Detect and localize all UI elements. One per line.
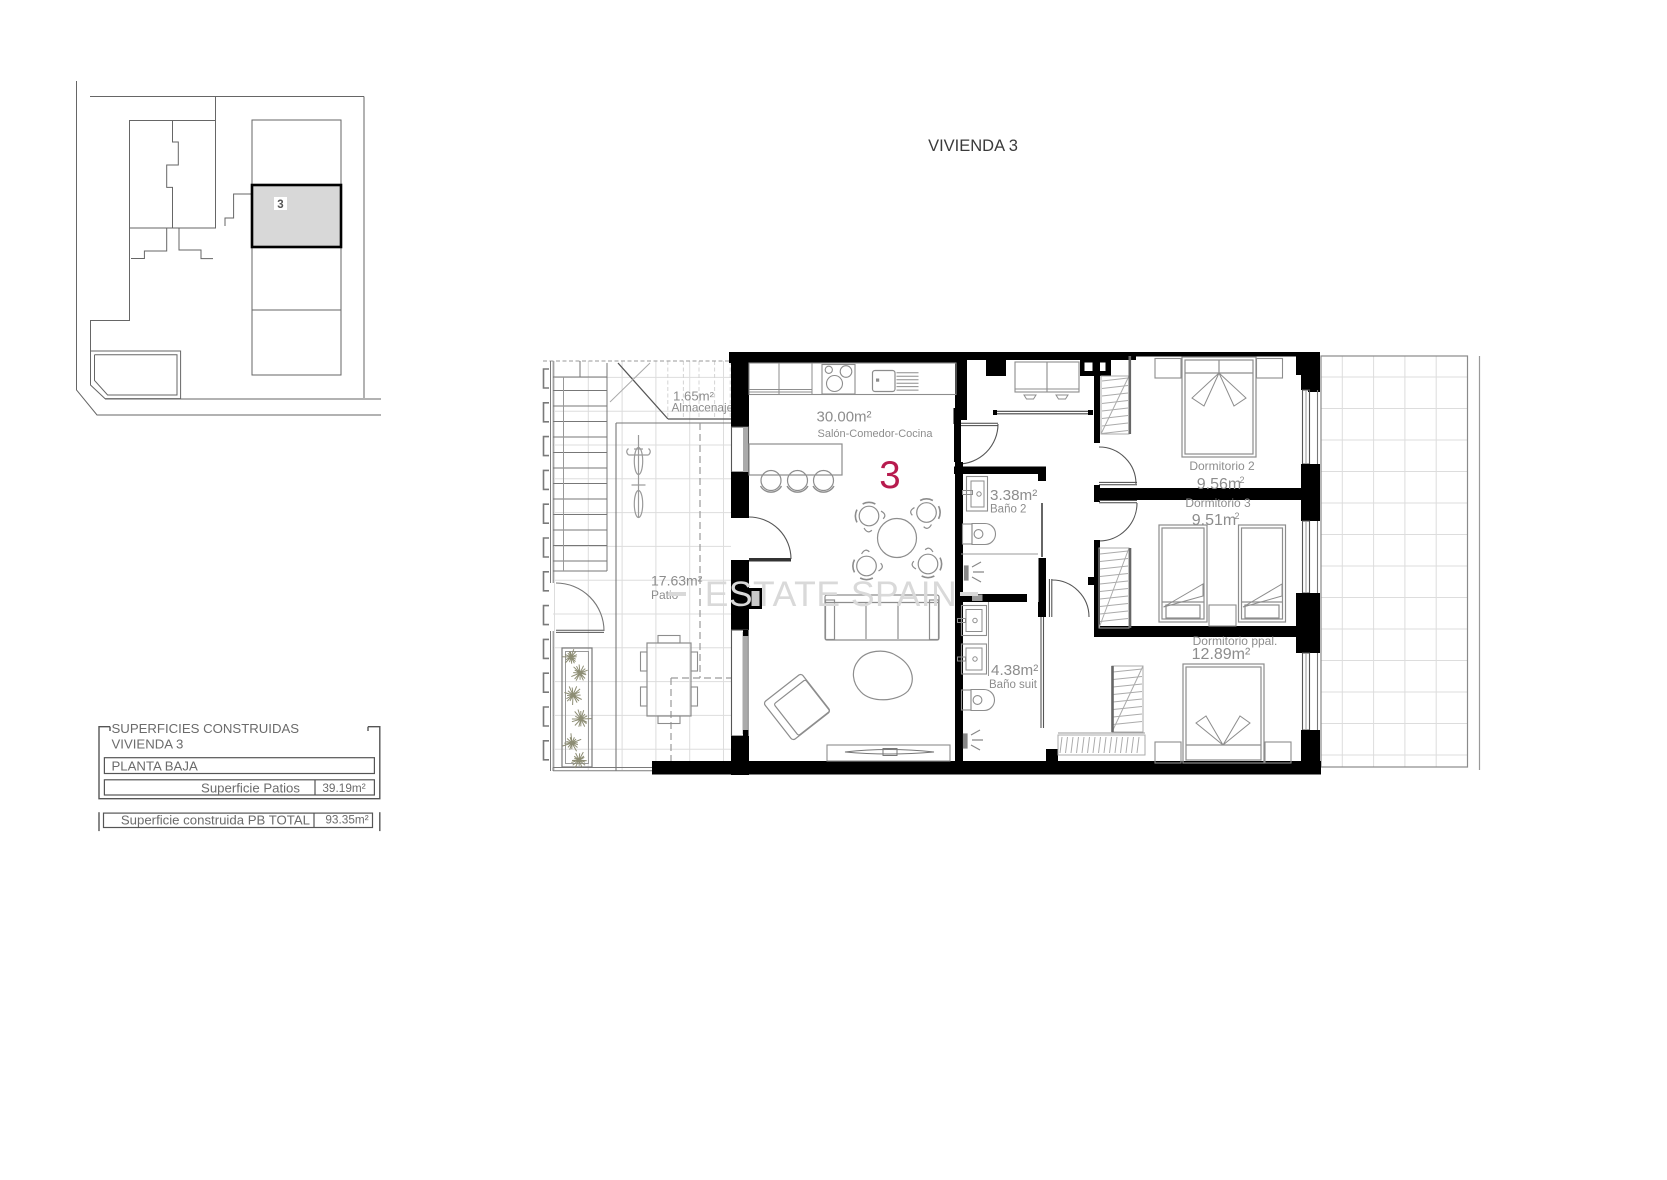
svg-text:Almacenaje: Almacenaje — [672, 401, 734, 415]
svg-text:Dormitorio 3: Dormitorio 3 — [1185, 496, 1251, 510]
svg-text:39.19m²: 39.19m² — [322, 781, 365, 795]
svg-text:PLANTA BAJA: PLANTA BAJA — [112, 758, 198, 773]
svg-text:Baño suit: Baño suit — [989, 679, 1038, 691]
svg-text:17.63m²: 17.63m² — [651, 573, 703, 589]
svg-text:2: 2 — [1234, 511, 1239, 521]
svg-text:SUPERFICIES CONSTRUIDAS: SUPERFICIES CONSTRUIDAS — [112, 721, 300, 736]
svg-text:3: 3 — [277, 199, 283, 211]
svg-text:3: 3 — [879, 454, 900, 497]
svg-text:2: 2 — [1239, 475, 1244, 485]
svg-text:Superficie Patios: Superficie Patios — [201, 780, 300, 795]
svg-text:9.56m: 9.56m — [1197, 476, 1241, 493]
svg-text:9.51m: 9.51m — [1192, 512, 1236, 529]
svg-text:VIVIENDA 3: VIVIENDA 3 — [112, 737, 184, 752]
svg-text:12.89m²: 12.89m² — [1192, 646, 1251, 663]
svg-text:VIVIENDA 3: VIVIENDA 3 — [928, 137, 1018, 155]
svg-text:Superficie construida PB TOTAL: Superficie construida PB TOTAL — [121, 813, 310, 828]
svg-text:Dormitorio 2: Dormitorio 2 — [1189, 459, 1255, 473]
svg-text:ESTATE SPAIN: ESTATE SPAIN — [705, 574, 958, 614]
svg-text:Salón-Comedor-Cocina: Salón-Comedor-Cocina — [818, 428, 934, 440]
svg-text:3.38m²: 3.38m² — [990, 487, 1037, 504]
svg-text:30.00m²: 30.00m² — [817, 409, 872, 426]
svg-text:93.35m²: 93.35m² — [325, 813, 368, 827]
svg-text:4.38m²: 4.38m² — [991, 662, 1038, 679]
svg-text:Baño 2: Baño 2 — [990, 504, 1026, 516]
